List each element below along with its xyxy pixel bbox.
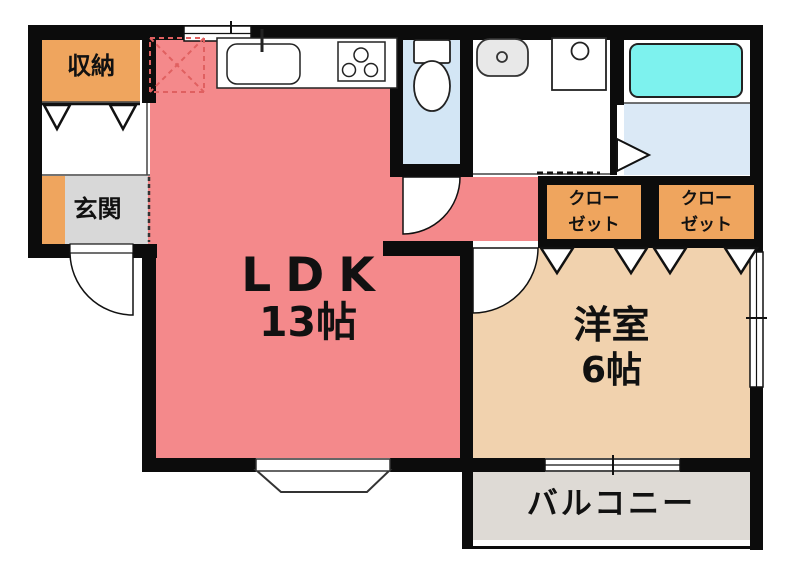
wall-western-bottom-right [680,458,763,472]
wall-balcony-left [462,458,473,546]
wall-ldk-bottom-left [142,458,256,472]
entrance-label: 玄関 [50,196,145,222]
washing-machine [552,38,606,90]
closet2-label-line2: ゼット [659,212,754,238]
wall-ldk-western-divider [460,241,473,472]
western-room-size-label: 6帖 [473,351,750,391]
closet2-label: クロー ゼット [659,186,754,238]
bay-window [256,459,390,492]
closet2-label-line1: クロー [659,186,754,212]
storage-label: 収納 [42,53,140,79]
floor-plan: 収納 玄関 LDK 13帖 洋室 6帖 バルコニー クロー ゼット クロー ゼッ… [0,0,800,575]
entrance-door [70,244,133,315]
ldk-label: LDK [156,250,460,302]
wall-toilet-bottom [390,164,460,177]
wall-entrance-bottom-left [28,244,70,258]
wall-bath-left-lower [610,105,617,175]
balcony-rail [462,546,763,549]
western-room-label: 洋室 [473,305,750,347]
closet1-label-line1: クロー [547,186,641,212]
wall-ldk-left [142,244,156,472]
closet1-label-line2: ゼット [547,212,641,238]
wall-bath-left-top [610,25,624,105]
washbasin [477,39,528,76]
wall-left [28,25,42,258]
balcony-label: バルコニー [473,487,750,521]
closet1-label: クロー ゼット [547,186,641,238]
stove [338,42,385,81]
hallway-floor [460,177,538,241]
wall-western-bottom-left [473,458,545,472]
bathtub [630,44,742,97]
bath-floor [624,103,750,175]
toilet [414,40,450,111]
wall-toilet-washroom [460,25,473,177]
ldk-size-label: 13帖 [156,300,460,345]
